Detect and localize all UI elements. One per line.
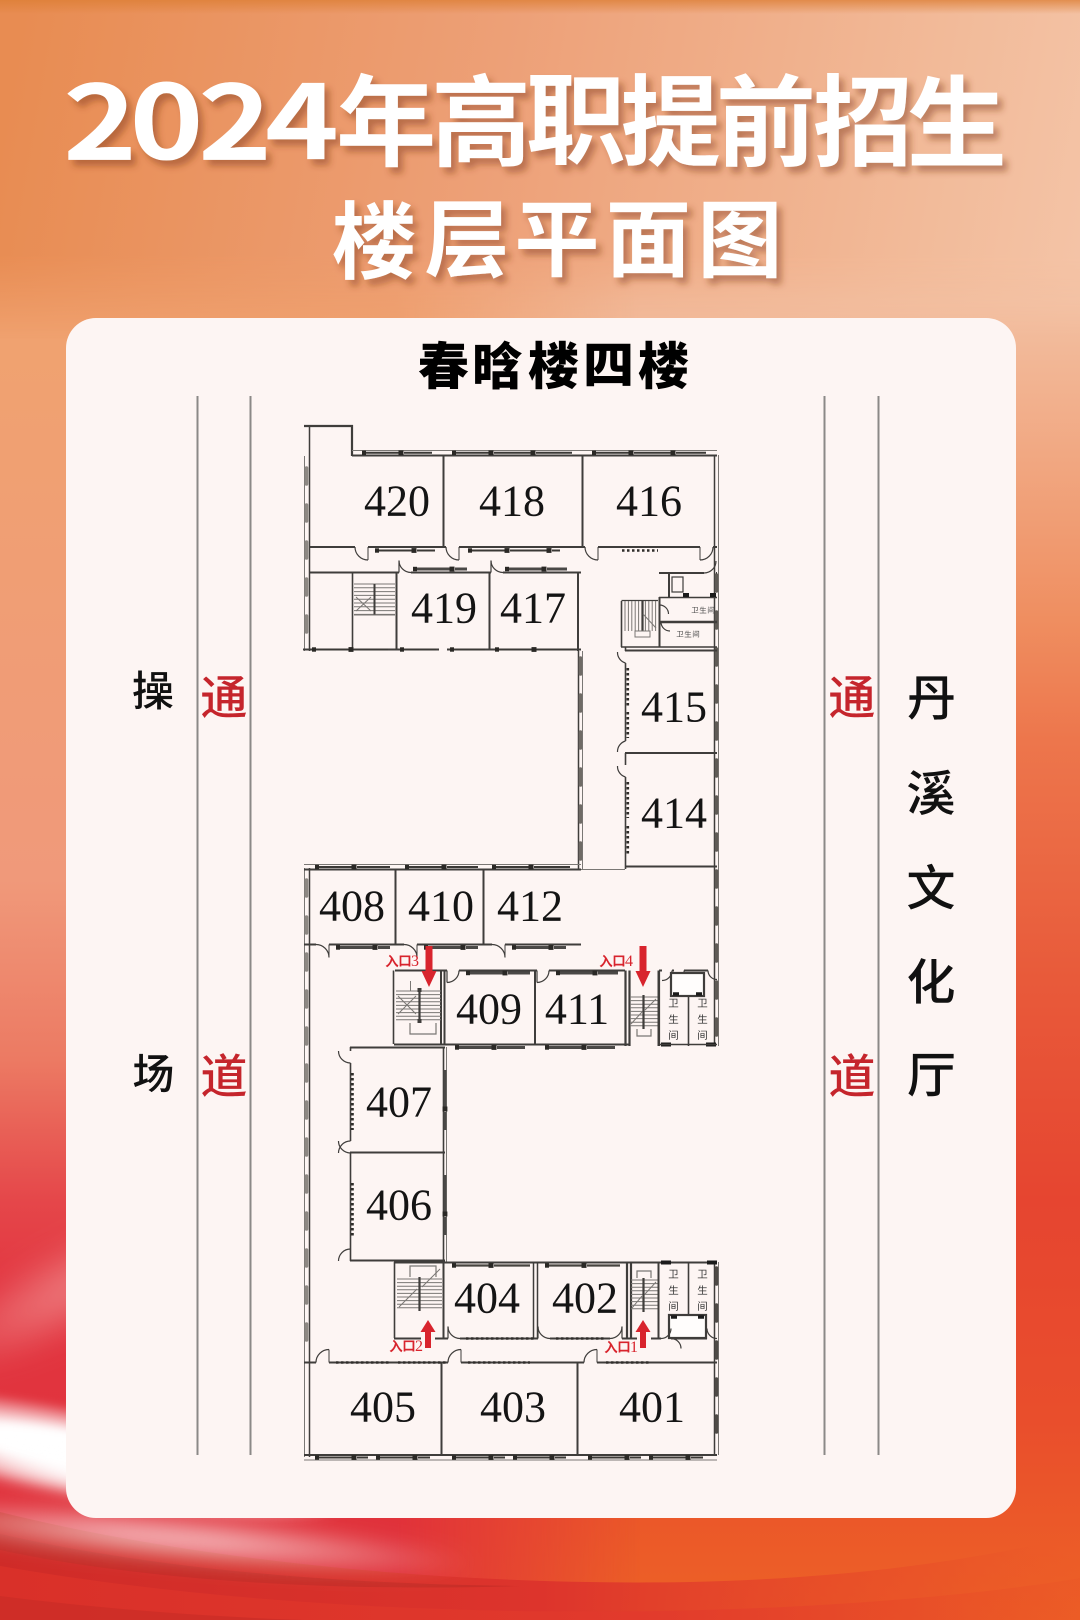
svg-text:401: 401	[619, 1383, 685, 1432]
svg-text:1: 1	[630, 1339, 638, 1356]
svg-text:403: 403	[480, 1383, 546, 1432]
svg-text:402: 402	[552, 1274, 618, 1323]
svg-text:411: 411	[545, 985, 609, 1034]
svg-text:3: 3	[411, 953, 419, 970]
svg-text:414: 414	[641, 789, 707, 838]
svg-text:417: 417	[500, 584, 566, 633]
svg-text:419: 419	[411, 584, 477, 633]
svg-text:2: 2	[415, 1338, 423, 1355]
svg-text:410: 410	[408, 882, 474, 931]
svg-text:406: 406	[366, 1181, 432, 1230]
svg-text:420: 420	[364, 477, 430, 526]
svg-text:416: 416	[616, 477, 682, 526]
svg-text:408: 408	[319, 882, 385, 931]
svg-text:405: 405	[350, 1383, 416, 1432]
svg-text:415: 415	[641, 683, 707, 732]
svg-text:404: 404	[454, 1274, 520, 1323]
svg-text:418: 418	[479, 477, 545, 526]
svg-text:4: 4	[625, 953, 633, 970]
svg-text:412: 412	[497, 882, 563, 931]
svg-text:409: 409	[456, 985, 522, 1034]
svg-text:407: 407	[366, 1078, 432, 1127]
